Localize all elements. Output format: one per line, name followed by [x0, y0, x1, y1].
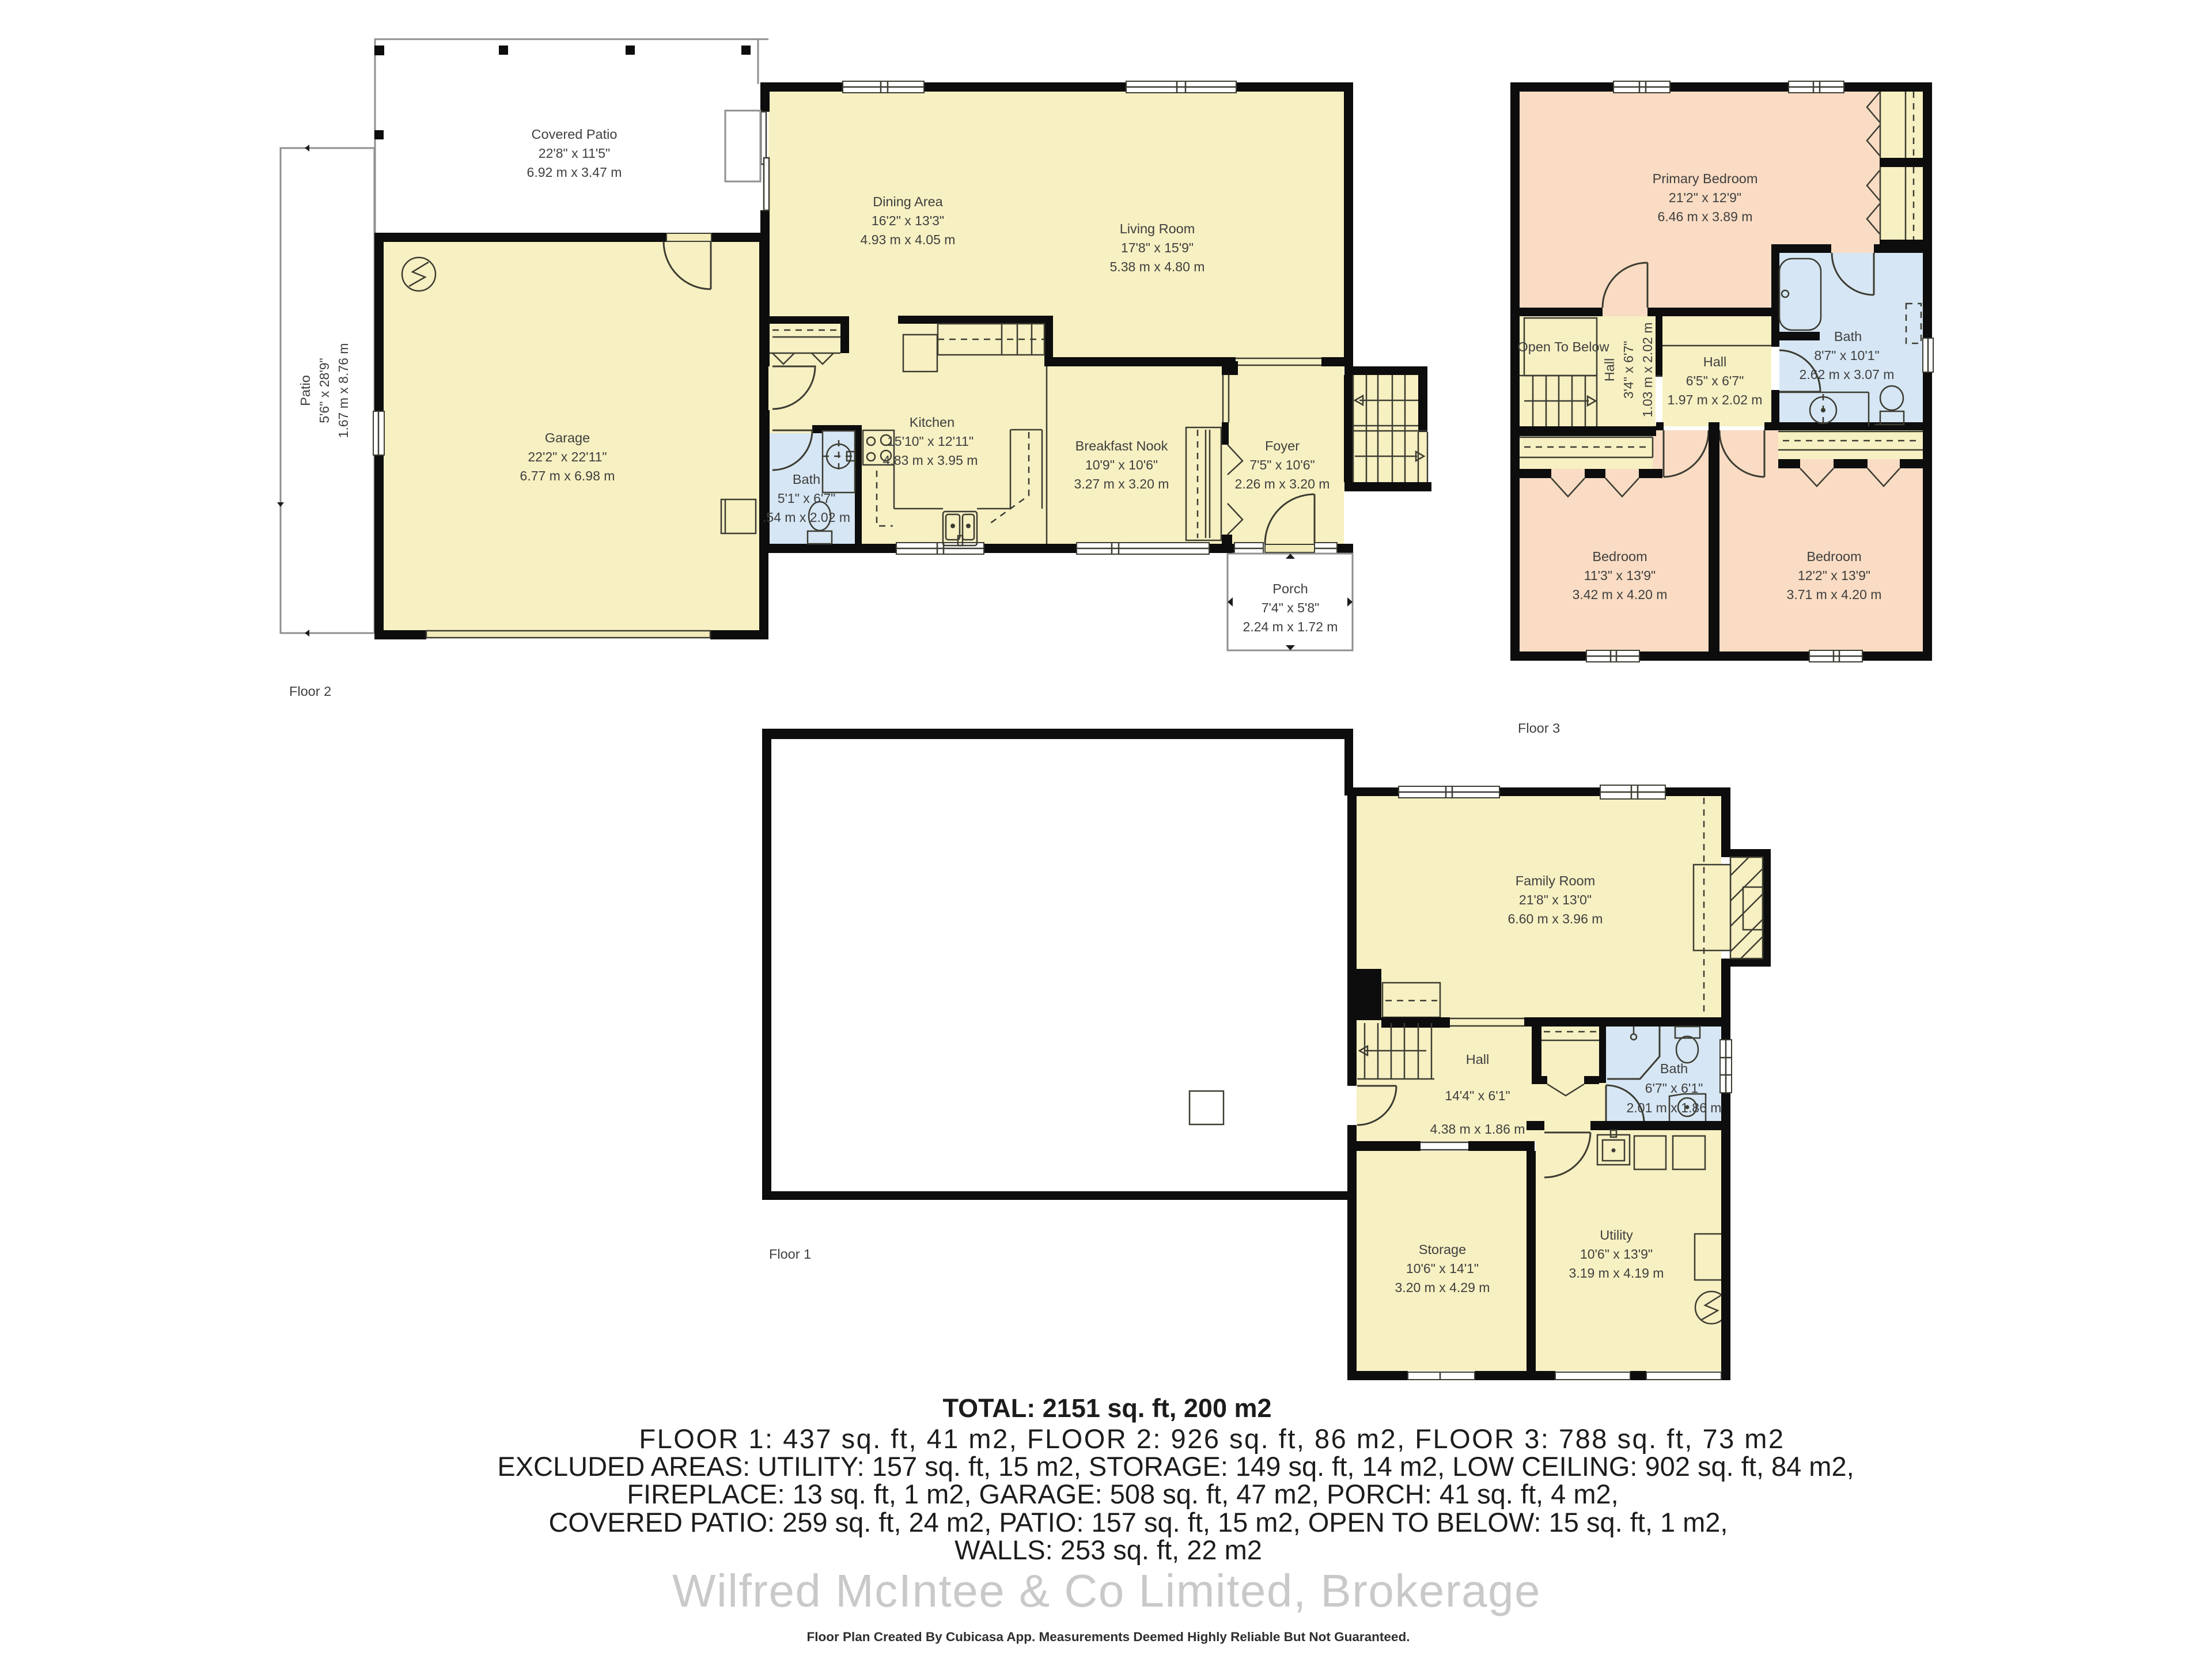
svg-text:COVERED PATIO: 259 sq. ft, 24: COVERED PATIO: 259 sq. ft, 24 m2, PATIO:…	[548, 1507, 1728, 1537]
svg-text:Bedroom: Bedroom	[1806, 549, 1861, 564]
svg-text:7'5" x 10'6": 7'5" x 10'6"	[1249, 457, 1315, 472]
svg-text:Storage: Storage	[1419, 1242, 1466, 1257]
svg-text:2.01 m x 1.86 m: 2.01 m x 1.86 m	[1627, 1100, 1722, 1115]
svg-text:Bath: Bath	[1834, 329, 1862, 344]
svg-text:Family Room: Family Room	[1516, 873, 1595, 888]
svg-text:Hall: Hall	[1703, 354, 1726, 369]
svg-text:Foyer: Foyer	[1265, 438, 1300, 453]
svg-text:21'2" x 12'9": 21'2" x 12'9"	[1669, 190, 1741, 205]
svg-text:6.77 m x 6.98 m: 6.77 m x 6.98 m	[520, 468, 615, 483]
svg-text:4.38 m x 1.86 m: 4.38 m x 1.86 m	[1430, 1122, 1525, 1137]
svg-text:6.46 m x 3.89 m: 6.46 m x 3.89 m	[1658, 209, 1753, 224]
svg-text:3.71 m x 4.20 m: 3.71 m x 4.20 m	[1787, 587, 1882, 602]
svg-text:Floor 3: Floor 3	[1518, 721, 1560, 736]
svg-text:3.19 m x 4.19 m: 3.19 m x 4.19 m	[1569, 1266, 1664, 1281]
svg-text:Wilfred McIntee & Co Limited,: Wilfred McIntee & Co Limited, Brokerage	[672, 1565, 1541, 1616]
svg-text:5.38 m x 4.80 m: 5.38 m x 4.80 m	[1110, 259, 1205, 274]
svg-text:4.83 m x 3.95 m: 4.83 m x 3.95 m	[883, 453, 978, 468]
svg-text:8'7" x 10'1": 8'7" x 10'1"	[1814, 348, 1879, 363]
svg-text:TOTAL: 2151 sq. ft, 200 m2: TOTAL: 2151 sq. ft, 200 m2	[942, 1393, 1271, 1423]
svg-text:Bedroom: Bedroom	[1592, 549, 1647, 564]
svg-text:Open To Below: Open To Below	[1518, 339, 1610, 354]
svg-text:1.67 m x 8.76 m: 1.67 m x 8.76 m	[336, 343, 351, 438]
svg-text:Bath: Bath	[793, 472, 820, 487]
svg-text:Hall: Hall	[1466, 1052, 1489, 1067]
svg-text:FLOOR 1: 437 sq. ft, 41 m2, FL: FLOOR 1: 437 sq. ft, 41 m2, FLOOR 2: 926…	[639, 1423, 1785, 1454]
svg-text:FIREPLACE: 13 sq. ft, 1 m2, GA: FIREPLACE: 13 sq. ft, 1 m2, GARAGE: 508 …	[627, 1479, 1618, 1509]
svg-text:Living Room: Living Room	[1120, 221, 1195, 236]
svg-text:22'8" x 11'5": 22'8" x 11'5"	[539, 146, 610, 161]
svg-text:5'6" x 28'9": 5'6" x 28'9"	[317, 358, 332, 423]
svg-text:Covered Patio: Covered Patio	[532, 127, 618, 142]
svg-text:Breakfast Nook: Breakfast Nook	[1075, 438, 1168, 453]
svg-text:1.97 m x 2.02 m: 1.97 m x 2.02 m	[1668, 392, 1763, 407]
svg-text:Porch: Porch	[1272, 581, 1308, 596]
svg-text:6'7" x 6'1": 6'7" x 6'1"	[1645, 1081, 1703, 1096]
svg-text:Hall: Hall	[1602, 358, 1617, 381]
svg-text:16'2" x 13'3": 16'2" x 13'3"	[872, 213, 944, 228]
svg-text:Primary Bedroom: Primary Bedroom	[1653, 171, 1758, 186]
svg-text:Floor 1: Floor 1	[769, 1247, 811, 1262]
svg-text:WALLS: 253 sq. ft, 22 m2: WALLS: 253 sq. ft, 22 m2	[955, 1535, 1262, 1565]
svg-text:4.93 m x 4.05 m: 4.93 m x 4.05 m	[861, 232, 956, 247]
svg-text:1.03 m x 2.02 m: 1.03 m x 2.02 m	[1640, 323, 1655, 418]
svg-text:2.24 m x 1.72 m: 2.24 m x 1.72 m	[1243, 619, 1338, 634]
svg-text:Bath: Bath	[1660, 1061, 1688, 1076]
svg-text:.54 m x 2.02 m: .54 m x 2.02 m	[763, 510, 850, 525]
svg-text:2.62 m x 3.07 m: 2.62 m x 3.07 m	[1800, 367, 1895, 382]
svg-text:11'3" x 13'9": 11'3" x 13'9"	[1584, 568, 1656, 583]
svg-text:3.27 m x 3.20 m: 3.27 m x 3.20 m	[1074, 476, 1169, 491]
svg-text:22'2" x 22'11": 22'2" x 22'11"	[528, 449, 607, 464]
svg-text:Patio: Patio	[298, 375, 313, 406]
svg-text:14'4" x 6'1": 14'4" x 6'1"	[1445, 1088, 1510, 1103]
svg-text:2.26 m x 3.20 m: 2.26 m x 3.20 m	[1235, 476, 1330, 491]
svg-text:21'8" x 13'0": 21'8" x 13'0"	[1519, 892, 1592, 907]
svg-text:Floor 2: Floor 2	[289, 684, 331, 699]
svg-text:6.92 m x 3.47 m: 6.92 m x 3.47 m	[527, 165, 622, 180]
svg-text:Garage: Garage	[545, 430, 590, 445]
svg-text:3.42 m x 4.20 m: 3.42 m x 4.20 m	[1573, 587, 1668, 602]
svg-text:10'9" x 10'6": 10'9" x 10'6"	[1085, 457, 1158, 472]
svg-text:Kitchen: Kitchen	[910, 415, 955, 430]
svg-text:12'2" x 13'9": 12'2" x 13'9"	[1798, 568, 1870, 583]
svg-text:17'8" x 15'9": 17'8" x 15'9"	[1121, 240, 1194, 255]
svg-text:7'4" x 5'8": 7'4" x 5'8"	[1262, 600, 1320, 615]
svg-text:6'5" x 6'7": 6'5" x 6'7"	[1686, 373, 1744, 388]
svg-text:3.20 m x 4.29 m: 3.20 m x 4.29 m	[1395, 1280, 1490, 1295]
svg-text:Dining Area: Dining Area	[873, 194, 943, 209]
svg-text:5'1" x 6'7": 5'1" x 6'7"	[778, 491, 836, 506]
svg-text:6.60 m x 3.96 m: 6.60 m x 3.96 m	[1508, 911, 1603, 926]
svg-text:Utility: Utility	[1600, 1228, 1633, 1243]
svg-text:Floor Plan Created By Cubicasa: Floor Plan Created By Cubicasa App. Meas…	[807, 1630, 1410, 1644]
svg-text:3'4" x 6'7": 3'4" x 6'7"	[1621, 341, 1636, 399]
svg-text:EXCLUDED AREAS: UTILITY: 157 s: EXCLUDED AREAS: UTILITY: 157 sq. ft, 15 …	[497, 1451, 1854, 1482]
svg-text:10'6" x 13'9": 10'6" x 13'9"	[1580, 1247, 1653, 1262]
svg-text:15'10" x 12'11": 15'10" x 12'11"	[887, 434, 974, 449]
svg-text:10'6" x 14'1": 10'6" x 14'1"	[1406, 1261, 1479, 1276]
